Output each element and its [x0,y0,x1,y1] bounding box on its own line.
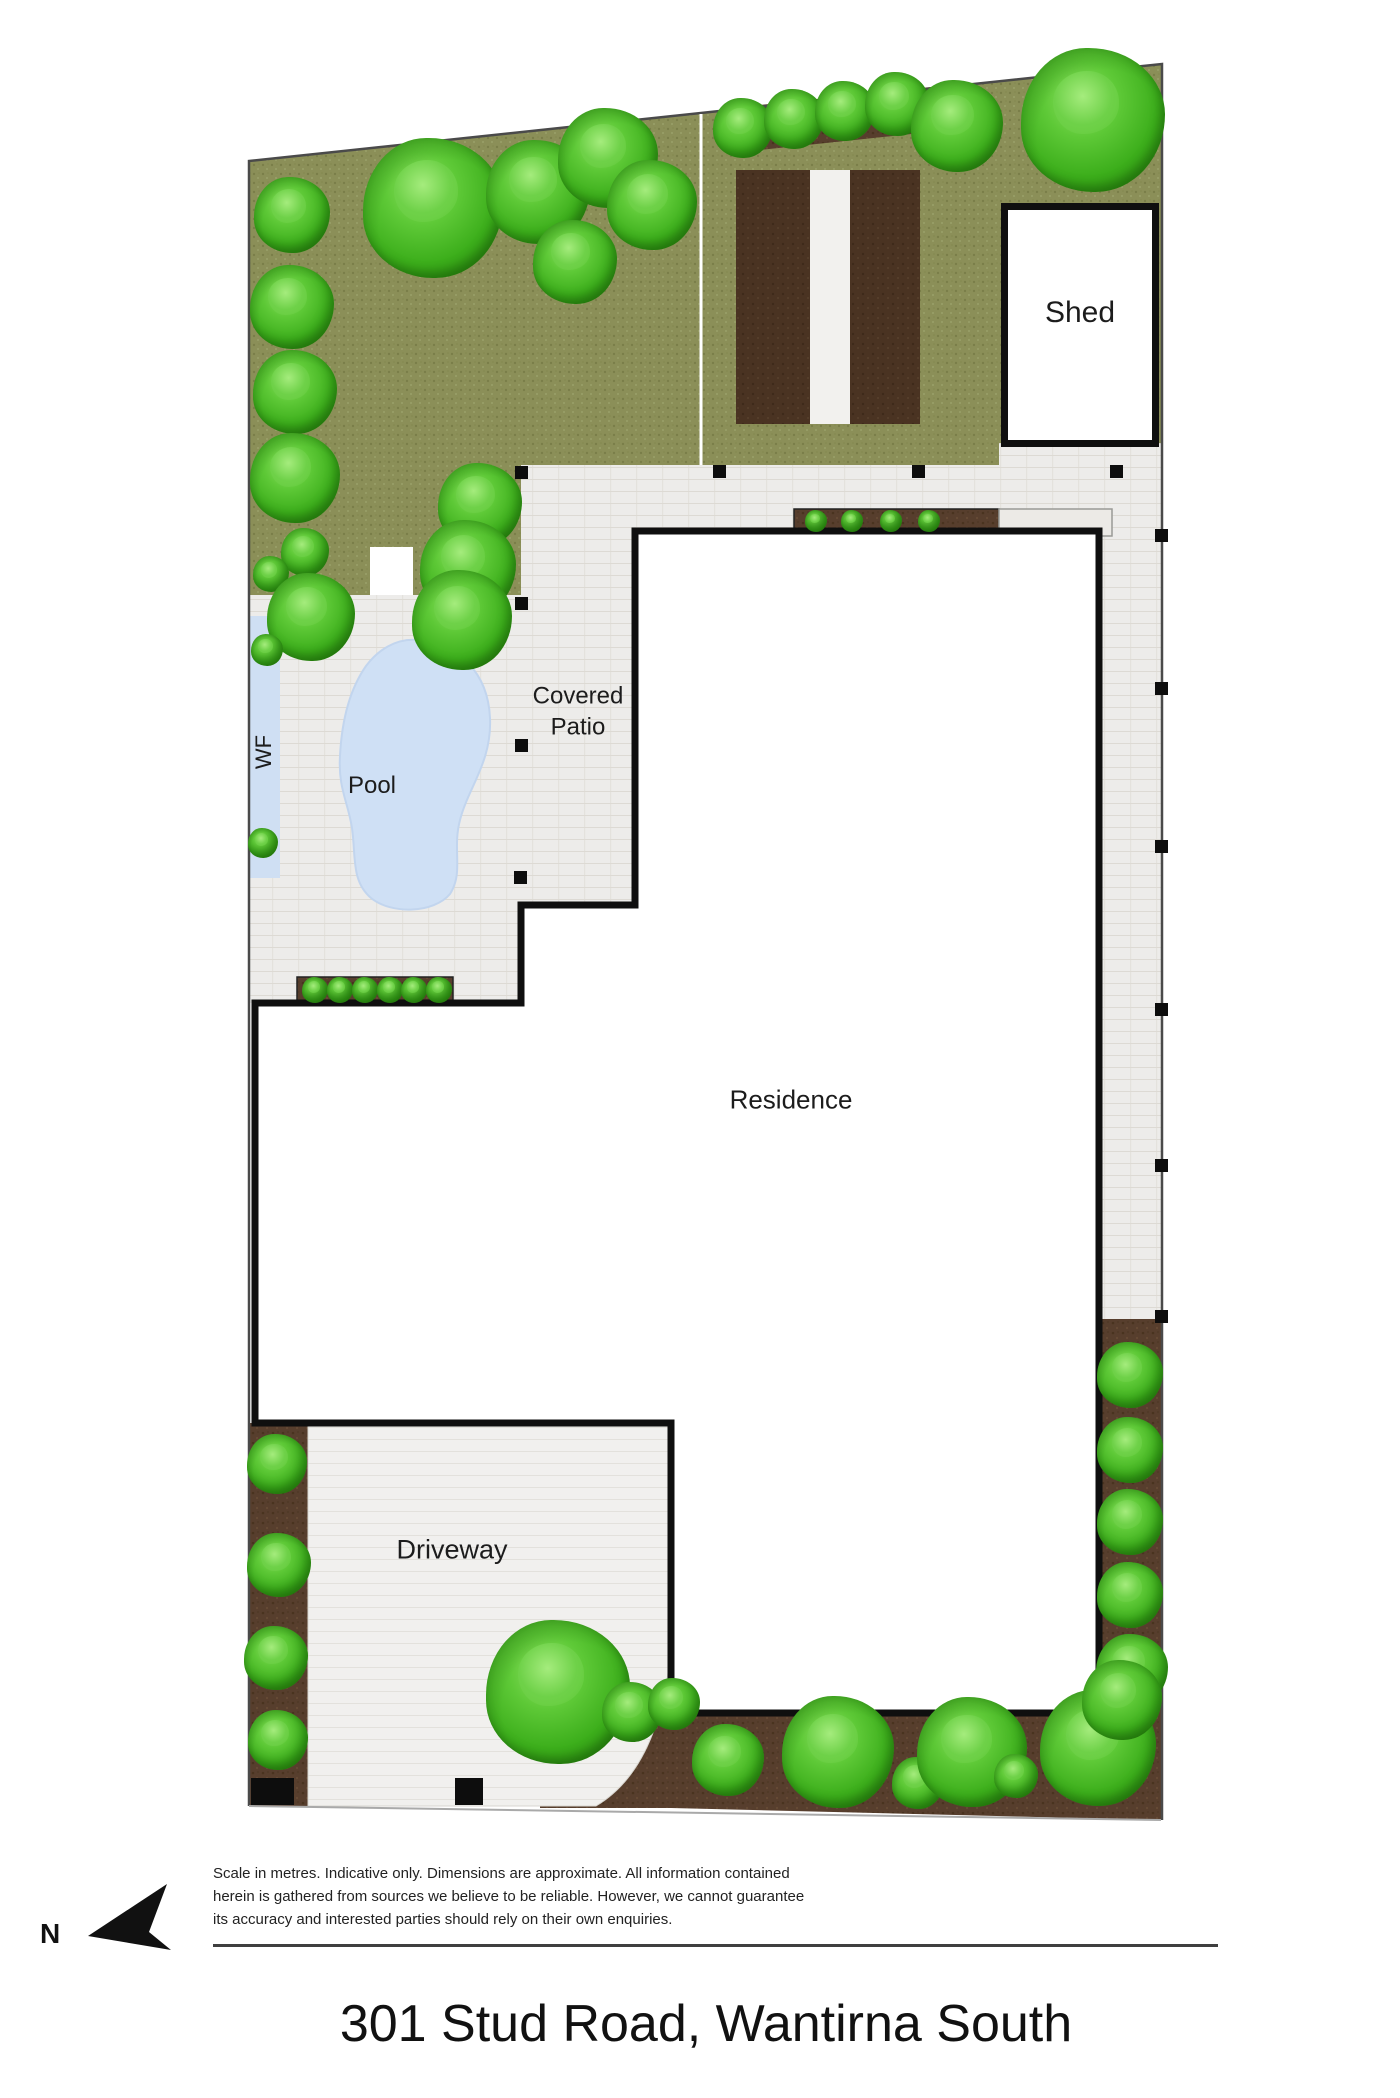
tree [841,510,863,532]
fence-post [515,597,528,610]
fence-post [1155,682,1168,695]
fence-post [713,465,726,478]
tree [412,570,512,670]
fence-post [1155,1003,1168,1016]
fence-post [515,466,528,479]
tree [1097,1417,1163,1483]
residence-label: Residence [730,1085,853,1116]
tree [426,977,452,1003]
tree [247,1533,311,1597]
tree [1097,1489,1163,1555]
tree [377,977,403,1003]
fence-post [912,465,925,478]
tree [250,265,334,349]
covered-patio-label-line1: Covered [533,681,624,712]
tree [247,1434,307,1494]
page-title: 301 Stud Road, Wantirna South [340,1994,1072,2054]
fence-post [1155,840,1168,853]
tree [648,1678,700,1730]
disclaimer-text: Scale in metres. Indicative only. Dimens… [213,1862,804,1931]
fence-post [1155,1310,1168,1323]
tree [782,1696,894,1808]
shed-label: Shed [1045,296,1115,330]
driveway-label: Driveway [396,1535,507,1566]
tree [251,634,283,666]
tree [994,1754,1038,1798]
covered-patio-label-line2: Patio [533,712,624,743]
tree [533,220,617,304]
vegetable-garden-path [810,170,850,424]
tree [1097,1342,1163,1408]
tree [302,977,328,1003]
north-arrow-icon [0,1860,200,1970]
fence-post [1110,465,1123,478]
tree [1097,1562,1163,1628]
tree [248,1710,308,1770]
covered-patio-label: Covered Patio [533,681,624,742]
disclaimer-line-3: its accuracy and interested parties shou… [213,1908,804,1931]
pool-label: Pool [348,772,396,800]
gate-post-left [251,1778,294,1805]
driveway-paving [308,1423,671,1806]
tree [880,510,902,532]
tree [1021,48,1165,192]
fence-post [514,871,527,884]
tree [918,510,940,532]
divider-rule [213,1944,1218,1947]
tree [244,1626,308,1690]
tree [692,1724,764,1796]
disclaimer-line-1: Scale in metres. Indicative only. Dimens… [213,1862,804,1885]
tree [1082,1660,1162,1740]
tree [248,828,278,858]
fence-post [515,739,528,752]
tree [911,80,1003,172]
gate-post-right [455,1778,483,1805]
disclaimer-line-2: herein is gathered from sources we belie… [213,1885,804,1908]
tree [607,160,697,250]
tree [401,977,427,1003]
tree [327,977,353,1003]
fence-post [1155,1159,1168,1172]
water-feature-label: WF [251,735,277,769]
tree [805,510,827,532]
site-plan-page: Shed Covered Patio Pool WF Residence Dri… [0,0,1400,2098]
north-label: N [40,1918,60,1950]
fence-post [1155,529,1168,542]
tree [254,177,330,253]
tree [363,138,503,278]
tree [253,350,337,434]
tree [352,977,378,1003]
tree [250,433,340,523]
